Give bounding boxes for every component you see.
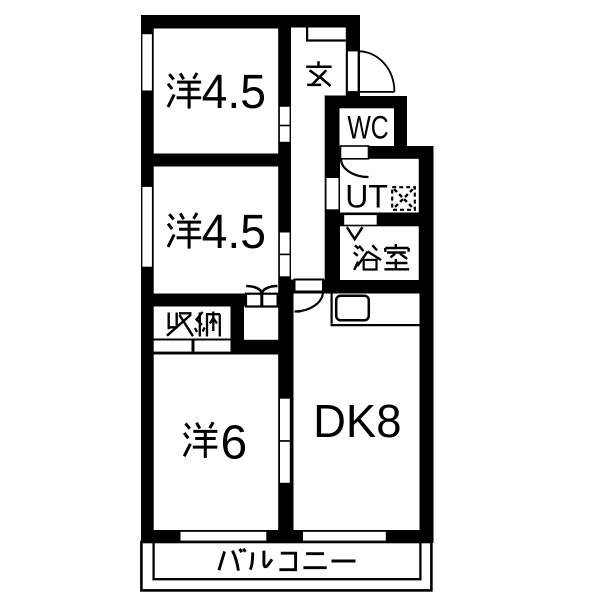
svg-text:4.5: 4.5 (202, 66, 266, 119)
svg-text:6: 6 (221, 416, 248, 469)
svg-text:DK8: DK8 (313, 395, 401, 447)
svg-text:WC: WC (347, 110, 388, 146)
svg-text:4.5: 4.5 (202, 206, 266, 259)
svg-text:UT: UT (345, 179, 388, 215)
